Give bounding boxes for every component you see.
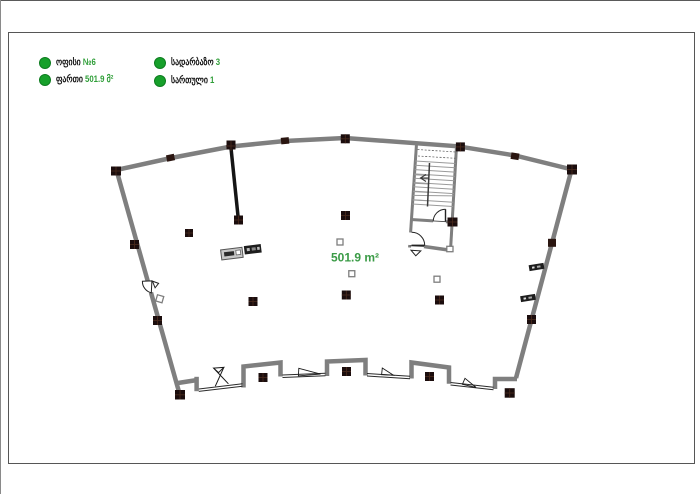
- svg-text:501.9 m²: 501.9 m²: [331, 250, 379, 264]
